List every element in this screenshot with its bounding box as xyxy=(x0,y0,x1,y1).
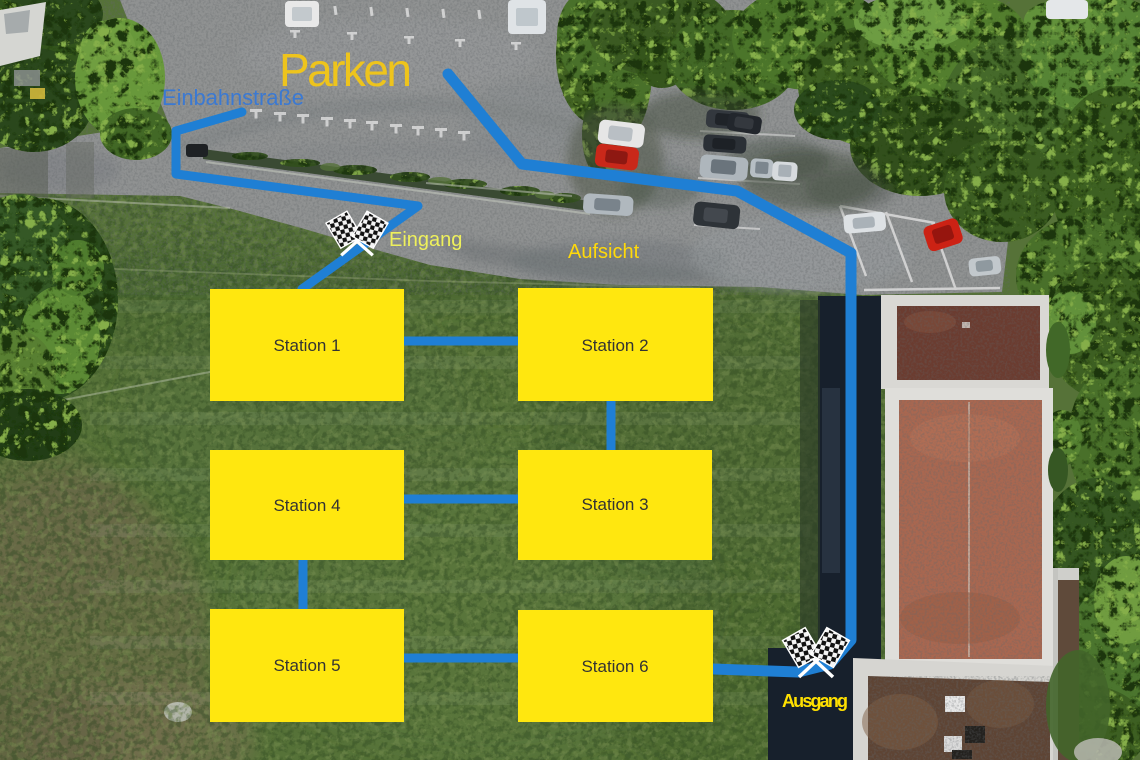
svg-text:Station 2: Station 2 xyxy=(581,336,648,355)
svg-text:Ausgang: Ausgang xyxy=(782,691,848,711)
svg-text:Station 3: Station 3 xyxy=(581,495,648,514)
svg-text:Einbahnstraße: Einbahnstraße xyxy=(162,85,304,110)
svg-text:Eingang: Eingang xyxy=(389,229,462,251)
svg-text:Station 1: Station 1 xyxy=(273,336,340,355)
svg-text:Station 4: Station 4 xyxy=(273,496,340,515)
svg-text:Station 6: Station 6 xyxy=(581,657,648,676)
svg-text:Aufsicht: Aufsicht xyxy=(568,241,640,263)
svg-text:Station 5: Station 5 xyxy=(273,656,340,675)
